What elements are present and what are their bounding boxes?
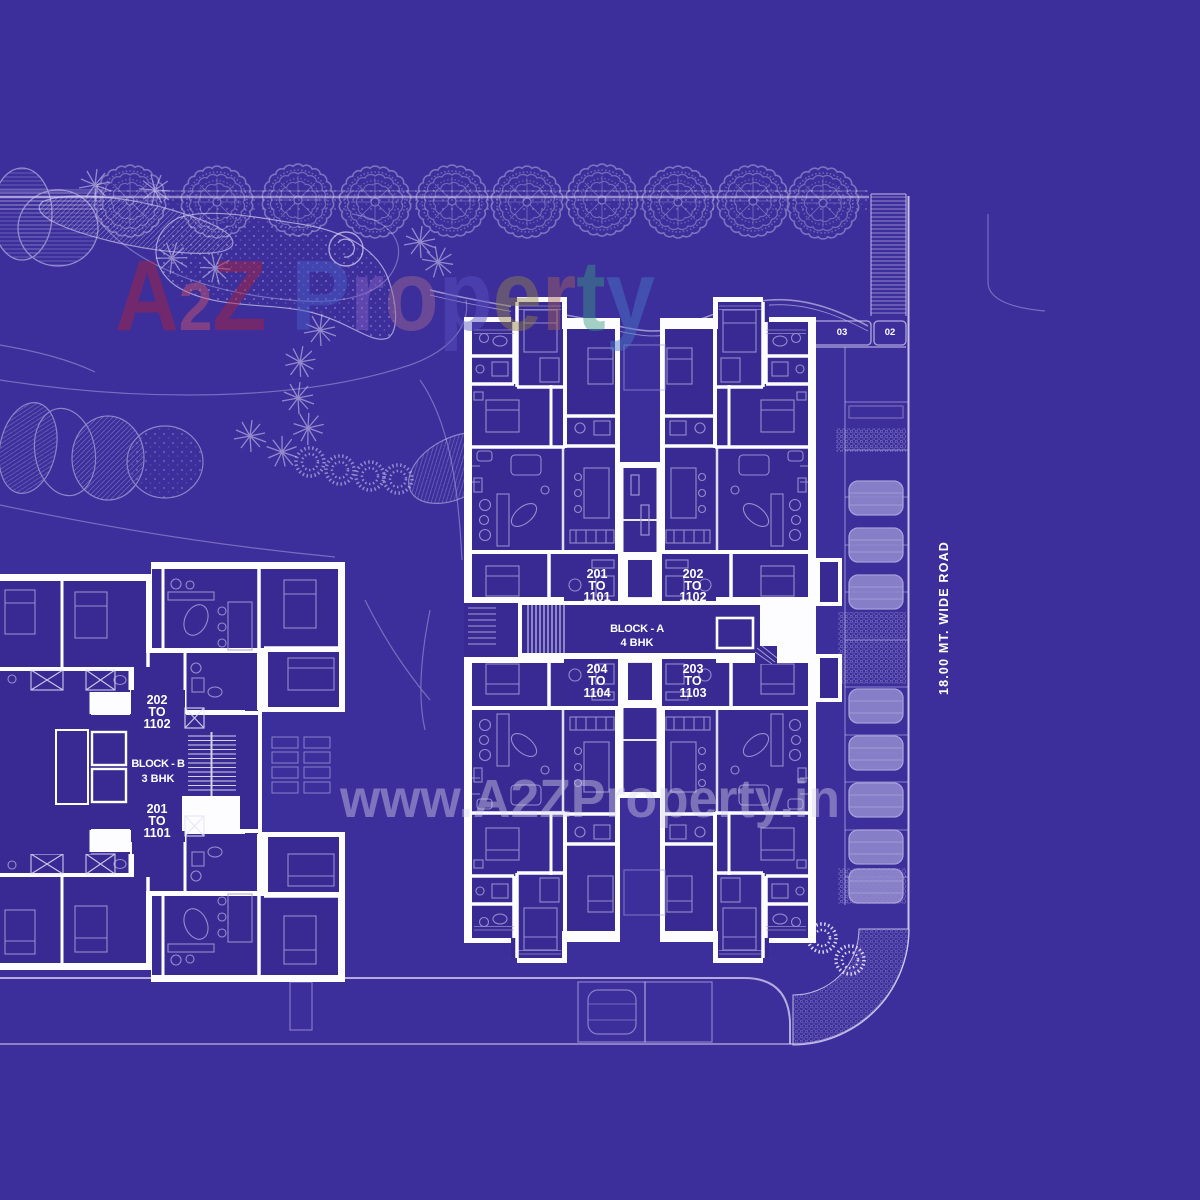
svg-text:1102: 1102 <box>143 717 170 731</box>
svg-text:3 BHK: 3 BHK <box>141 773 174 785</box>
svg-text:1101: 1101 <box>583 590 610 604</box>
svg-text:1103: 1103 <box>679 686 706 700</box>
svg-text:1104: 1104 <box>583 686 610 700</box>
svg-text:BLOCK - A: BLOCK - A <box>610 623 664 635</box>
svg-text:02: 02 <box>885 327 896 338</box>
svg-text:www.A2ZProperty.in: www.A2ZProperty.in <box>339 769 840 829</box>
svg-text:03: 03 <box>837 327 848 338</box>
svg-text:1102: 1102 <box>679 590 706 604</box>
svg-text:1101: 1101 <box>143 826 170 840</box>
svg-text:4 BHK: 4 BHK <box>620 637 653 649</box>
svg-text:18.00 MT. WIDE ROAD: 18.00 MT. WIDE ROAD <box>937 541 951 695</box>
svg-text:BLOCK - B: BLOCK - B <box>131 758 185 770</box>
